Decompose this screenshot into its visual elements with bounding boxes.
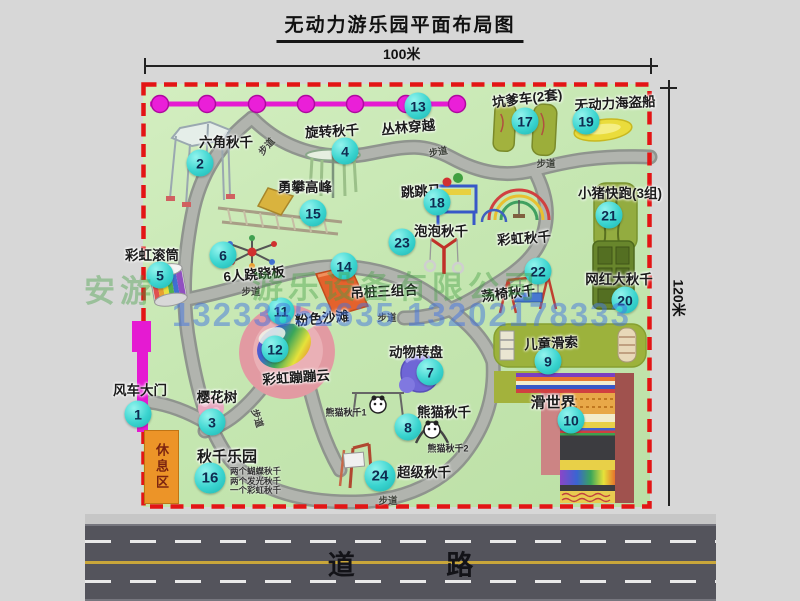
badge-12: 12 <box>262 336 289 363</box>
road: 道 路 <box>85 514 716 599</box>
road-label: 道 路 <box>286 543 516 582</box>
attraction-label-5: 彩虹滚筒 <box>125 244 179 264</box>
badge-23: 23 <box>389 229 416 256</box>
attraction-label-4: 旋转秋千 <box>305 119 360 142</box>
swing-park-detail-3: 一个彩虹秋千 <box>230 486 281 496</box>
attraction-label-20: 网红大秋千 <box>585 268 653 288</box>
width-dim-tick-left <box>144 58 146 74</box>
panda-swing-1-label: 熊猫秋千1 <box>325 406 366 419</box>
sidewalk <box>85 514 716 524</box>
badge-7: 7 <box>417 359 444 386</box>
badge-3: 3 <box>199 409 226 436</box>
width-dimension-line <box>145 65 658 67</box>
panda-swing-2-label: 熊猫秋千2 <box>427 442 468 455</box>
height-dim-tick-top <box>660 87 677 89</box>
playground-layout-map: 无动力游乐园平面布局图 100米 120米 <box>0 0 800 600</box>
attraction-label-15: 勇攀高峰 <box>278 176 332 196</box>
page-title: 无动力游乐园平面布局图 <box>276 10 523 43</box>
badge-13: 13 <box>405 93 432 120</box>
attraction-label-23: 泡泡秋千 <box>414 220 468 240</box>
width-dim-tick-right <box>650 58 652 74</box>
attraction-label-8: 熊猫秋千 <box>417 401 471 421</box>
swing-park-details: 两个蝴蝶秋千 两个发光秋千 一个彩虹秋千 <box>230 467 281 496</box>
walkway-label: 步道 <box>536 156 555 170</box>
rest-area-label: 休息区 <box>152 443 171 491</box>
asphalt: 道 路 <box>85 524 716 601</box>
badge-15: 15 <box>300 200 327 227</box>
badge-21: 21 <box>596 202 623 229</box>
watermark-phone: 13233852635 13202178333 <box>172 296 631 334</box>
attraction-label-21: 小猪快跑(3组) <box>578 182 662 202</box>
attraction-label-7: 动物转盘 <box>389 341 443 361</box>
badge-4: 4 <box>332 138 359 165</box>
badge-9: 9 <box>535 348 562 375</box>
badge-18: 18 <box>424 189 451 216</box>
badge-10: 10 <box>558 407 585 434</box>
attraction-label-1: 风车大门 <box>113 379 167 399</box>
badge-16: 16 <box>195 463 226 494</box>
attraction-label-3: 樱花树 <box>197 386 238 406</box>
badge-17: 17 <box>512 108 539 135</box>
width-dimension-label: 100米 <box>383 44 420 64</box>
attraction-label-24: 超级秋千 <box>397 461 451 481</box>
attraction-label-2: 六角秋千 <box>199 131 253 151</box>
walkway-label: 步道 <box>378 493 397 507</box>
rest-area: 休息区 <box>144 430 179 504</box>
watermark-fragment: 安游 <box>84 266 156 311</box>
badge-6: 6 <box>210 242 237 269</box>
badge-1: 1 <box>125 401 152 428</box>
height-dimension-label: 120米 <box>669 279 689 316</box>
badge-19: 19 <box>573 108 600 135</box>
badge-24: 24 <box>365 461 396 492</box>
badge-2: 2 <box>187 150 214 177</box>
badge-8: 8 <box>395 414 422 441</box>
rainbow-swing-label: 彩虹秋千 <box>496 225 551 249</box>
